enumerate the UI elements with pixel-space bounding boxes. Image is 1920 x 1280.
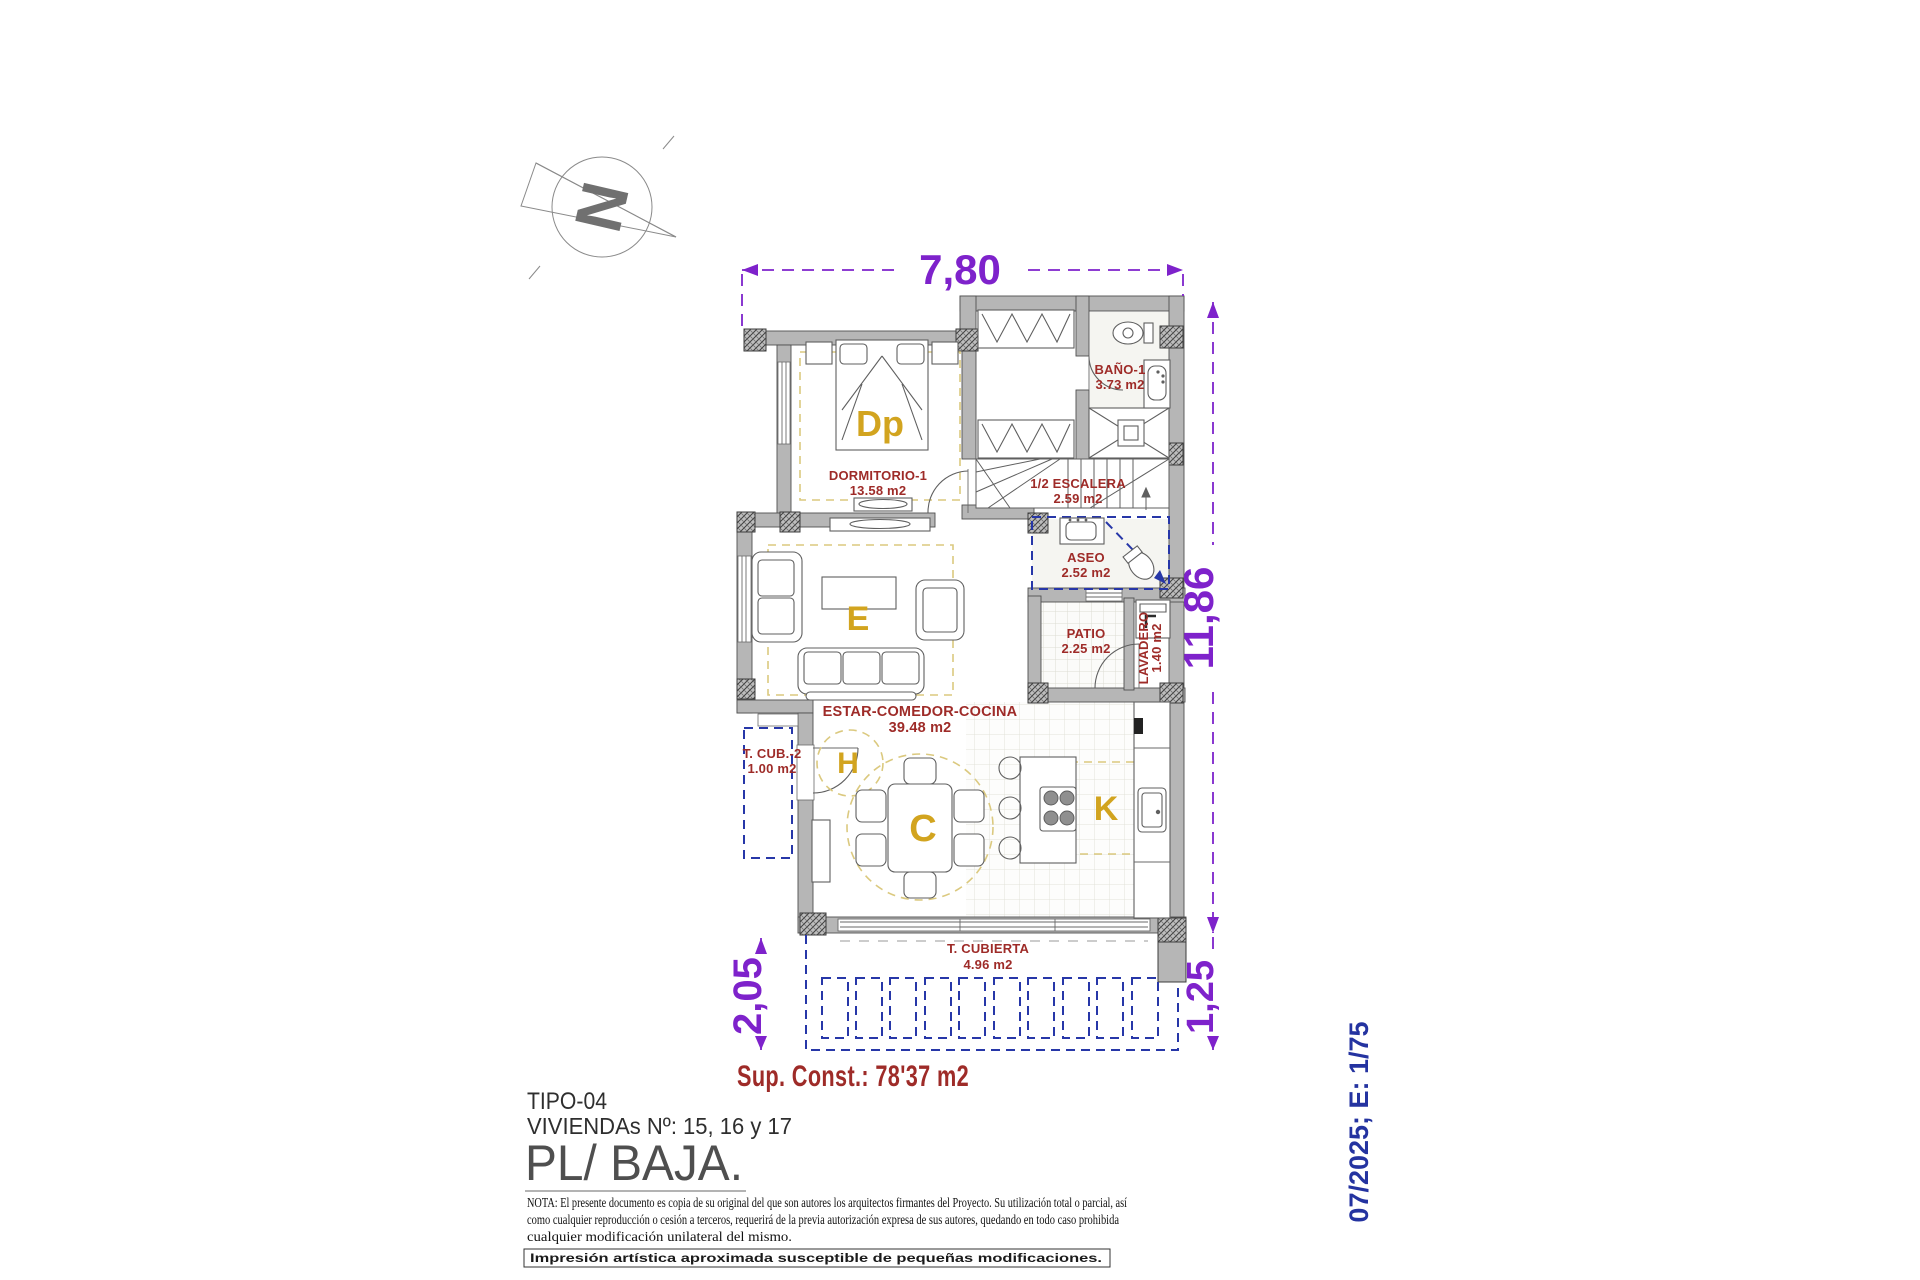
dim-right: 11,86 [1175,567,1222,670]
plan-type: TIPO-04 [527,1088,607,1115]
label-aseo-name: ASEO [1067,550,1105,565]
pergola-beams [822,978,1158,1038]
label-patio-name: PATIO [1067,626,1106,641]
shower [1089,408,1169,458]
note-line-2: como cualquier reproducción o cesión a t… [527,1212,1119,1227]
label-dormitorio-area: 13.58 m2 [850,483,907,498]
label-tcubierta-area: 4.96 m2 [963,957,1012,972]
dim-top: 7,80 [919,246,1001,293]
zone-dormitorio: Dp [856,403,904,444]
label-tcub2-name: T. CUB.-2 [743,746,802,761]
label-banyo-name: BAÑO-1 [1094,362,1145,377]
label-patio-area: 2.25 m2 [1061,641,1110,656]
floor-plan-drawing: N [0,0,1920,1280]
note-line-1: NOTA: El presente documento es copia de … [527,1195,1127,1210]
floor-plan-page: N [0,0,1920,1280]
disclaimer-text: Impresión artística aproximada susceptib… [530,1251,1102,1265]
note-line-3: cualquier modificación unilateral del mi… [527,1229,792,1244]
label-dormitorio-name: DORMITORIO-1 [829,468,927,483]
zone-dining: C [909,808,936,850]
label-estar-area: 39.48 m2 [889,720,952,736]
label-tcub2-area: 1.00 m2 [747,761,796,776]
label-aseo-area: 2.52 m2 [1061,565,1110,580]
north-arrow-compass: N [521,136,676,279]
zone-living: E [847,600,870,638]
label-escalera-area: 2.59 m2 [1053,491,1102,506]
north-letter: N [561,175,644,238]
label-tcubierta-name: T. CUBIERTA [947,941,1030,956]
date-scale-stamp: 07/2025; E: 1/75 [1344,1021,1374,1222]
plan-floor-title: PL/ BAJA. [525,1135,743,1191]
label-estar-name: ESTAR-COMEDOR-COCINA [823,704,1018,720]
label-lavadero-area: 1.40 m2 [1149,623,1164,672]
built-area-summary: Sup. Const.: 78'37 m2 [737,1060,969,1093]
dim-bottom-right: 1,25 [1180,960,1222,1034]
dim-bottom-left: 2,05 [726,957,770,1035]
label-escalera-name: 1/2 ESCALERA [1030,476,1126,491]
title-block: TIPO-04 VIVIENDAs Nº: 15, 16 y 17 PL/ BA… [524,1088,1127,1267]
zone-kitchen: K [1094,790,1119,828]
zone-hall: H [837,747,859,780]
label-banyo-area: 3.73 m2 [1095,377,1144,392]
